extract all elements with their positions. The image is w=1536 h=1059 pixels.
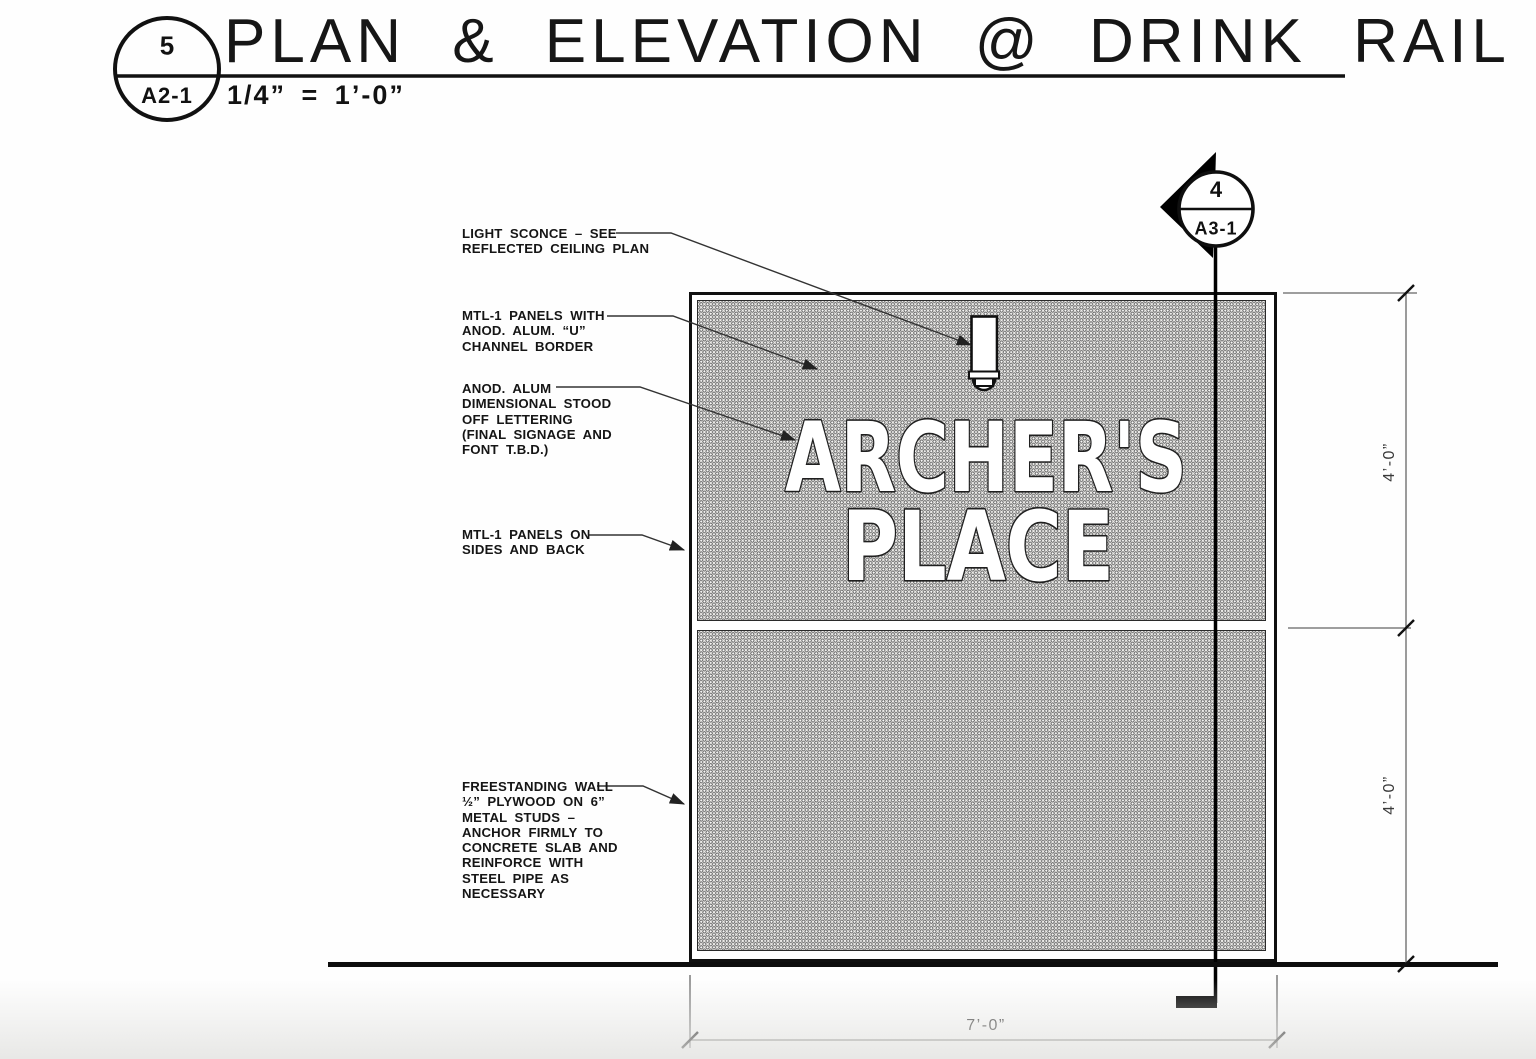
annotation-line: ANOD. ALUM — [462, 381, 612, 396]
annotation-line: (FINAL SIGNAGE AND — [462, 427, 612, 442]
annotation-light-sconce: LIGHT SCONCE – SEE REFLECTED CEILING PLA… — [462, 226, 649, 257]
dimension-label-lower-height: 4’-0” — [1381, 775, 1399, 815]
annotation-mtl1-panels-border: MTL-1 PANELS WITH ANOD. ALUM. “U” CHANNE… — [462, 308, 605, 354]
section-marker-number: 4 — [1210, 177, 1222, 203]
background-gradient — [0, 979, 1536, 1059]
annotation-line: MTL-1 PANELS ON — [462, 527, 590, 542]
leader-sides-back — [589, 535, 684, 550]
annotation-freestanding-wall: FREESTANDING WALL ½” PLYWOOD ON 6” METAL… — [462, 779, 618, 901]
annotation-line: ANCHOR FIRMLY TO — [462, 825, 618, 840]
annotation-line: REFLECTED CEILING PLAN — [462, 241, 649, 256]
dimension-label-upper-height: 4’-0” — [1381, 442, 1399, 482]
detail-tag-sheet: A2-1 — [141, 83, 193, 109]
annotation-line: NECESSARY — [462, 886, 618, 901]
annotation-line: SIDES AND BACK — [462, 542, 590, 557]
annotation-line: ANOD. ALUM. “U” — [462, 323, 605, 338]
drawing-sheet: ARCHER'S PLACE — [0, 0, 1536, 1059]
height-dimension-ticks — [1398, 285, 1414, 972]
wall-lower-panel-hatch — [697, 630, 1266, 951]
section-marker-sheet: A3-1 — [1194, 219, 1237, 240]
annotation-line: CHANNEL BORDER — [462, 339, 605, 354]
annotation-line: FONT T.B.D.) — [462, 442, 612, 457]
annotation-line: LIGHT SCONCE – SEE — [462, 226, 649, 241]
annotation-line: FREESTANDING WALL — [462, 779, 618, 794]
section-cut-foot — [1176, 996, 1217, 1008]
drawing-title: PLAN & ELEVATION @ DRINK RAIL — [224, 6, 1511, 77]
section-arrow-triangle — [1160, 152, 1216, 258]
annotation-stood-off-lettering: ANOD. ALUM DIMENSIONAL STOOD OFF LETTERI… — [462, 381, 612, 457]
detail-tag-number: 5 — [160, 31, 174, 62]
annotation-line: CONCRETE SLAB AND — [462, 840, 618, 855]
height-dimension-lines — [1283, 293, 1417, 964]
freestanding-wall-elevation — [689, 292, 1277, 962]
annotation-line: REINFORCE WITH — [462, 855, 618, 870]
drawing-scale: 1/4” = 1’-0” — [227, 80, 405, 111]
wall-upper-panel-hatch — [697, 300, 1266, 621]
annotation-line: METAL STUDS – — [462, 810, 618, 825]
annotation-line: MTL-1 PANELS WITH — [462, 308, 605, 323]
annotation-line: STEEL PIPE AS — [462, 871, 618, 886]
annotation-line: ½” PLYWOOD ON 6” — [462, 794, 618, 809]
width-dimension-lines — [690, 975, 1277, 1048]
annotation-line: OFF LETTERING — [462, 412, 612, 427]
annotation-line: DIMENSIONAL STOOD — [462, 396, 612, 411]
annotation-mtl1-sides-back: MTL-1 PANELS ON SIDES AND BACK — [462, 527, 590, 558]
dimension-label-width: 7’-0” — [966, 1017, 1006, 1035]
